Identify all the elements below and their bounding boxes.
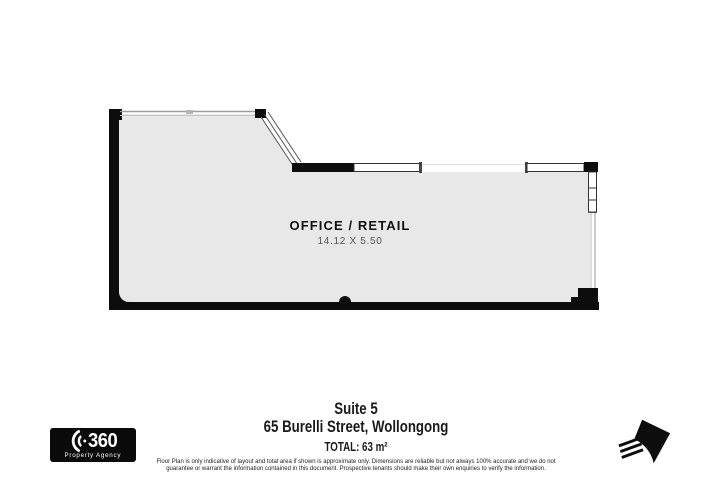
window-mullion-tick: [186, 110, 193, 114]
opening-post-left: [419, 162, 422, 173]
logo-number: 360: [88, 431, 117, 451]
logo-subtitle: Property Agency: [65, 452, 122, 459]
disclaimer-line-2: guarantee or warrant the information con…: [0, 466, 712, 473]
agency-logo: 360 Property Agency: [50, 428, 136, 462]
logo-row: 360: [66, 431, 120, 451]
north-arrow-icon: [616, 414, 674, 470]
wall-left: [109, 109, 119, 310]
wall-corner-topleft: [109, 109, 122, 120]
wall-post-diagonal-top: [255, 109, 266, 118]
window-top-b: [527, 164, 584, 172]
floor-plan-geometry: [109, 109, 599, 310]
suite-title: Suite 5: [78, 400, 633, 417]
arcs-icon: [66, 429, 88, 453]
total-area: TOTAL: 63 m²: [78, 441, 633, 454]
address: 65 Burelli Street, Wollongong: [78, 418, 633, 435]
wall-corner-topright: [584, 162, 598, 172]
floor-area: [116, 114, 590, 303]
wall-bottom: [109, 302, 599, 310]
window-top-a: [354, 164, 420, 172]
window-right: [589, 172, 597, 212]
wall-top-mid: [292, 163, 354, 172]
page-canvas: OFFICE / RETAIL 14.12 X 5.50 Suite 5 65 …: [0, 0, 712, 480]
